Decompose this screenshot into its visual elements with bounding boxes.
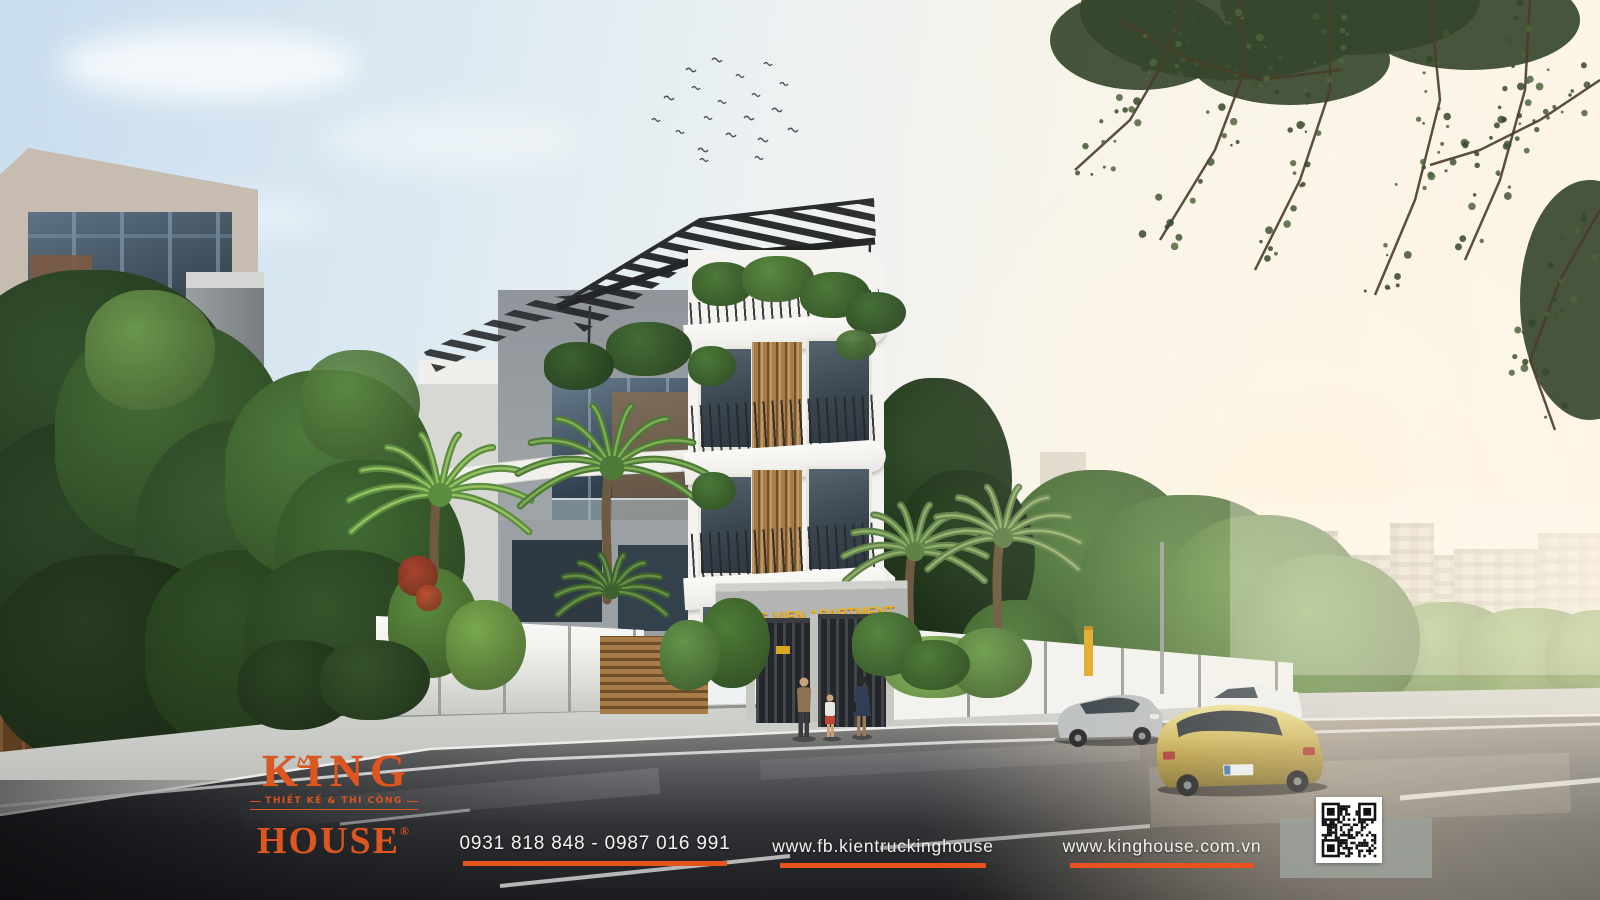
overhanging-branches (0, 0, 1600, 900)
scene: HUNG VIEN APARTMENT (0, 0, 1600, 900)
